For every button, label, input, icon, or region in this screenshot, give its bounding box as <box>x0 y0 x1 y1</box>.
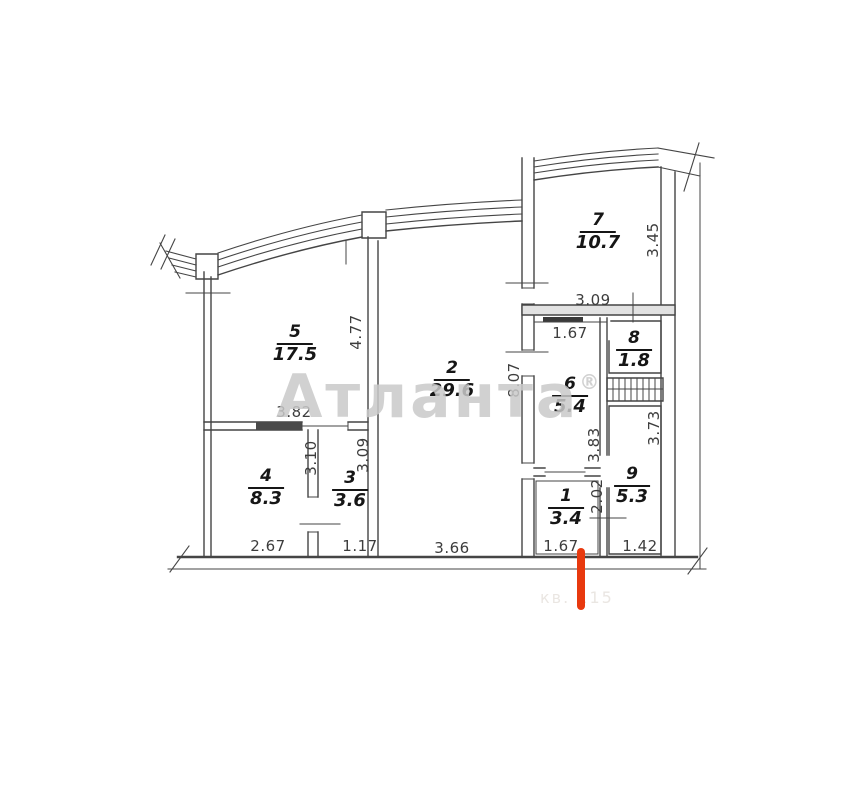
room-label-9: 9 5.3 <box>614 466 650 507</box>
dim-room7-width: 3.09 <box>575 291 610 309</box>
room-area: 1.8 <box>616 351 652 371</box>
dim-room7-height: 3.45 <box>644 222 662 257</box>
dim-room2-width: 3.66 <box>434 539 469 557</box>
room-number: 7 <box>580 212 616 233</box>
dim-room9-width: 1.42 <box>622 537 657 555</box>
room-number: 3 <box>332 470 368 491</box>
dim-room4-width: 2.67 <box>250 537 285 555</box>
watermark-text: Атланта <box>276 362 579 432</box>
room-area: 8.3 <box>248 489 284 509</box>
dim-hall-height: 2.02 <box>588 478 606 513</box>
room-label-3: 3 3.6 <box>332 470 368 511</box>
room-number: 8 <box>616 330 652 351</box>
room-label-5: 5 17.5 <box>273 324 317 365</box>
room-label-4: 4 8.3 <box>248 468 284 509</box>
dim-room9-height: 3.73 <box>645 410 663 445</box>
registered-trademark-icon: ® <box>579 370 599 394</box>
room-area: 3.6 <box>332 491 368 511</box>
dim-room4-height: 3.10 <box>302 440 320 475</box>
room-label-7: 7 10.7 <box>576 212 620 253</box>
room-number: 9 <box>614 466 650 487</box>
dim-room5-height: 4.77 <box>347 314 365 349</box>
entrance-marker <box>577 548 585 610</box>
floor-plan-page: 5 17.5 2 29.6 7 10.7 8 1.8 6 5.4 9 5.3 1… <box>0 0 867 800</box>
watermark-logo: Атланта® <box>276 362 599 432</box>
room-label-8: 8 1.8 <box>616 330 652 371</box>
dim-room3-width: 1.17 <box>342 537 377 555</box>
dim-room6-height: 3.83 <box>585 427 603 462</box>
dim-hall-width: 1.67 <box>543 537 578 555</box>
stairs-hatch <box>607 378 663 401</box>
room-label-1: 1 3.4 <box>548 488 584 529</box>
room-area: 3.4 <box>548 509 584 529</box>
dim-room3-height: 3.09 <box>354 437 372 472</box>
room-number: 1 <box>548 488 584 509</box>
room-area: 5.3 <box>614 487 650 507</box>
dim-room6-top-width: 1.67 <box>552 324 587 342</box>
room-number: 5 <box>277 324 313 345</box>
room-area: 10.7 <box>576 233 620 253</box>
room-number: 4 <box>248 468 284 489</box>
